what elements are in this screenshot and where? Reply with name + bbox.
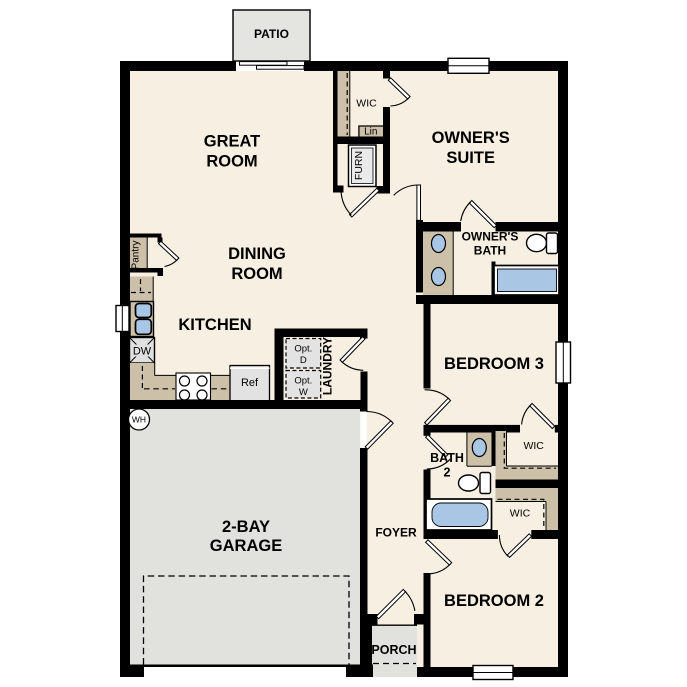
- svg-text:GREAT: GREAT: [204, 133, 261, 151]
- svg-text:Lin: Lin: [364, 127, 377, 138]
- svg-text:BEDROOM 2: BEDROOM 2: [444, 592, 544, 610]
- svg-text:DW: DW: [133, 346, 152, 358]
- svg-text:OWNER'S: OWNER'S: [432, 129, 510, 147]
- svg-text:D: D: [300, 355, 307, 366]
- svg-text:Ref: Ref: [241, 377, 259, 389]
- svg-text:SUITE: SUITE: [446, 149, 495, 167]
- svg-text:2: 2: [444, 466, 451, 480]
- svg-text:FURN: FURN: [353, 151, 365, 180]
- svg-text:FOYER: FOYER: [375, 526, 417, 540]
- svg-text:Opt.: Opt.: [294, 344, 312, 355]
- svg-text:WIC: WIC: [510, 508, 531, 520]
- svg-text:Opt.: Opt.: [294, 376, 312, 387]
- svg-text:PATIO: PATIO: [254, 27, 289, 41]
- svg-text:2-BAY: 2-BAY: [222, 518, 270, 536]
- svg-text:WH: WH: [132, 415, 146, 425]
- svg-text:GARAGE: GARAGE: [210, 537, 282, 555]
- svg-text:PORCH: PORCH: [371, 643, 416, 657]
- svg-text:KITCHEN: KITCHEN: [178, 316, 251, 334]
- svg-text:WIC: WIC: [523, 440, 544, 452]
- svg-text:OWNER'S: OWNER'S: [462, 230, 519, 244]
- svg-text:BATH: BATH: [474, 244, 506, 258]
- svg-text:DINING: DINING: [228, 245, 286, 263]
- svg-text:ROOM: ROOM: [231, 265, 282, 283]
- svg-text:BATH: BATH: [430, 451, 464, 465]
- svg-text:W: W: [299, 387, 308, 398]
- svg-text:Pantry: Pantry: [131, 241, 142, 270]
- svg-text:LAUNDRY: LAUNDRY: [321, 337, 335, 395]
- svg-text:WIC: WIC: [356, 98, 377, 110]
- svg-text:ROOM: ROOM: [206, 153, 257, 171]
- svg-text:BEDROOM 3: BEDROOM 3: [444, 355, 544, 373]
